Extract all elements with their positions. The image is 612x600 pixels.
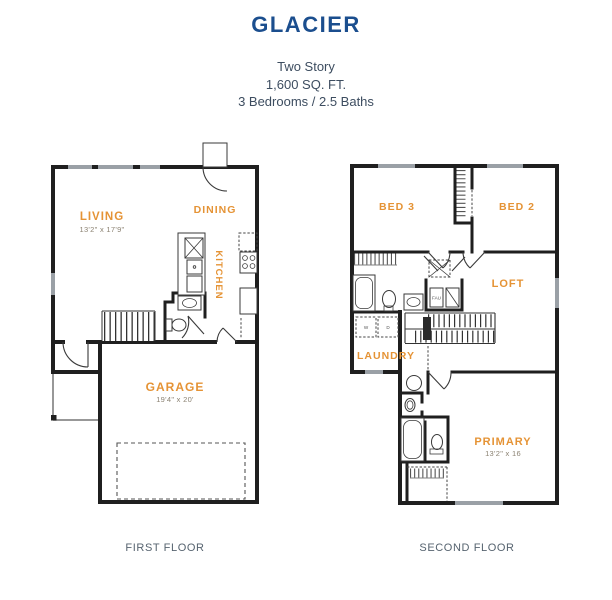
subtitle-line-sqft: 1,600 SQ. FT. — [0, 76, 612, 94]
bed3-label: BED 3 — [379, 201, 415, 213]
garage-dims: 19'4" x 20' — [156, 395, 194, 404]
plan-subtitle: Two Story 1,600 SQ. FT. 3 Bedrooms / 2.5… — [0, 58, 612, 111]
first-floor-plan: LIVING 13'2" x 17'9" DINING KITCHEN GARA… — [40, 140, 270, 530]
stairs — [405, 313, 495, 370]
pedestal-sink — [383, 291, 396, 308]
stove — [240, 252, 257, 273]
kitchen-island — [178, 233, 205, 295]
refrigerator — [239, 233, 257, 251]
plan-header: GLACIER — [0, 12, 612, 38]
fau-label: FAU — [432, 296, 441, 301]
toilet — [166, 319, 172, 331]
front-door — [63, 342, 88, 367]
kitchen-counter — [240, 288, 257, 314]
pedestal-sink — [432, 435, 443, 450]
dishwasher — [187, 260, 202, 274]
bed2-door — [463, 252, 485, 268]
living-dims: 13'2" x 17'9" — [79, 225, 124, 234]
plan-title: GLACIER — [251, 12, 361, 37]
back-door — [203, 143, 227, 167]
stair-landing — [423, 317, 431, 340]
subtitle-line-stories: Two Story — [0, 58, 612, 76]
garage-label: GARAGE — [146, 380, 205, 394]
hall-bath — [353, 275, 423, 311]
dryer-label: D — [386, 325, 390, 330]
first-floor-caption: FIRST FLOOR — [40, 542, 290, 554]
garage-door-dashed — [117, 443, 245, 499]
primary-bath — [401, 418, 443, 461]
washer-label: W — [364, 325, 369, 330]
floor-plan-page: GLACIER Two Story 1,600 SQ. FT. 3 Bedroo… — [0, 0, 612, 600]
loft-label: LOFT — [492, 278, 525, 290]
subtitle-line-bedbath: 3 Bedrooms / 2.5 Baths — [0, 93, 612, 111]
primary-closet — [407, 467, 447, 501]
laundry-room: W D — [356, 317, 398, 337]
laundry-label: LAUNDRY — [357, 350, 415, 362]
garage-entry-door — [217, 328, 237, 342]
second-floor-caption: SECOND FLOOR — [342, 542, 592, 554]
second-floor-plan: FAU W D — [340, 140, 575, 530]
porch-post — [51, 415, 57, 421]
primary-dims: 13'2" x 16 — [485, 449, 521, 458]
primary-label: PRIMARY — [474, 436, 531, 448]
bed2-label: BED 2 — [499, 201, 535, 213]
bath-hall-doors — [424, 256, 465, 271]
primary-door — [428, 372, 451, 389]
kitchen-label: KITCHEN — [213, 250, 224, 299]
living-label: LIVING — [80, 211, 124, 223]
porch — [51, 372, 100, 421]
toilet — [407, 376, 422, 391]
kitchen-appliances — [239, 233, 257, 339]
dining-label: DINING — [194, 204, 237, 216]
stairs — [102, 311, 155, 341]
